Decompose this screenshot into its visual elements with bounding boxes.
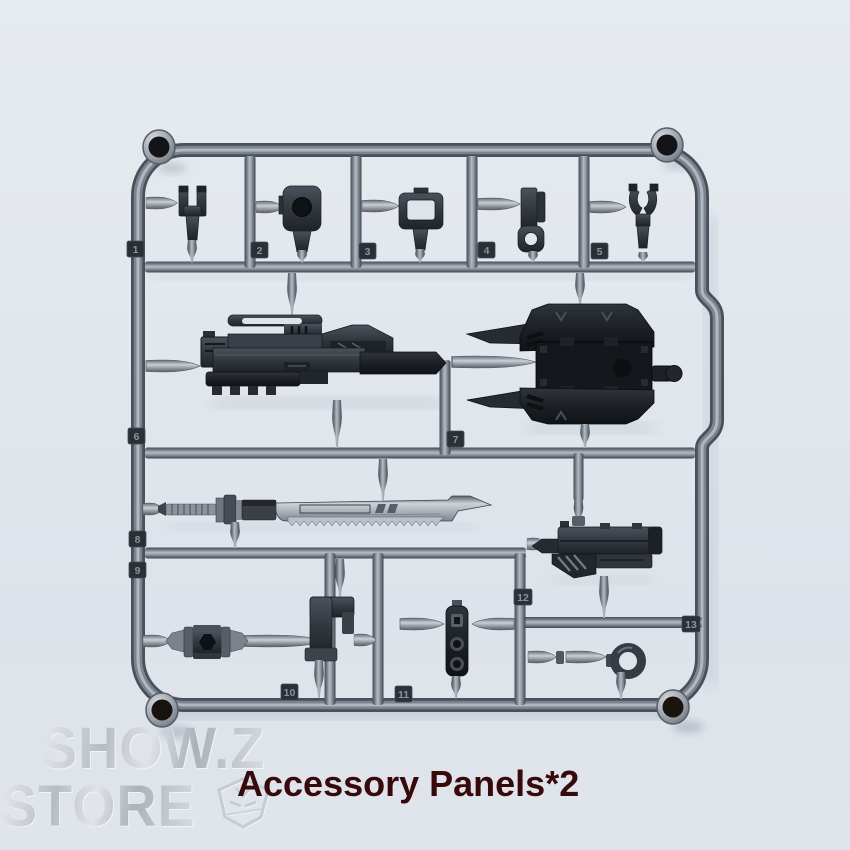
part-number-tag: 2	[251, 242, 268, 258]
tag-7-label: 7	[453, 434, 459, 446]
part-number-tag: 10	[281, 684, 298, 700]
part-number-tag: 6	[128, 428, 145, 444]
pistol-part	[527, 498, 662, 618]
tag-2-label: 2	[257, 245, 263, 257]
runner-row-mid	[145, 448, 695, 459]
tag-1-label: 1	[133, 244, 139, 256]
runner-row-bottom-right	[520, 617, 702, 628]
part-number-tag: 11	[395, 686, 412, 702]
corner-mount-top-right	[651, 128, 683, 162]
part-number-tag: 8	[129, 531, 146, 547]
corner-mount-bottom-right	[657, 690, 689, 724]
tag-10-label: 10	[284, 687, 296, 699]
sword-part	[143, 459, 491, 548]
part-number-tag: 13	[682, 616, 700, 632]
ring-part	[528, 648, 642, 700]
shield-part	[452, 273, 682, 448]
watermark-line2: STORE	[0, 780, 196, 833]
part-number-tag: 1	[127, 241, 144, 257]
part-number-tag: 7	[447, 431, 464, 447]
clamp-part-1	[146, 186, 206, 263]
tag-12-label: 12	[517, 592, 529, 604]
corner-mount-top-left	[143, 130, 175, 164]
part-number-tag: 3	[359, 243, 376, 259]
grip-part	[400, 600, 514, 699]
rifle-part	[146, 273, 446, 448]
caption-text: Accessory Panels*2	[237, 763, 579, 805]
tag-3-label: 3	[365, 246, 371, 258]
part-number-tag: 4	[478, 242, 495, 258]
tag-11-label: 11	[398, 689, 409, 701]
watermark: SHOW.Z STORE	[0, 722, 276, 833]
part-number-tag: 12	[514, 589, 532, 605]
connector-part	[143, 625, 325, 659]
tag-9-label: 9	[135, 565, 141, 577]
watermark-line1: SHOW.Z	[40, 722, 266, 775]
tag-13-label: 13	[685, 619, 697, 631]
tag-4-label: 4	[484, 245, 490, 257]
tag-6-label: 6	[134, 431, 140, 443]
elbow-pipe-part	[305, 559, 376, 698]
runner-row-top	[145, 262, 695, 273]
tag-5-label: 5	[597, 246, 603, 258]
part-number-tag: 5	[591, 243, 608, 259]
part-number-tag: 9	[129, 562, 146, 578]
tag-8-label: 8	[135, 534, 141, 546]
